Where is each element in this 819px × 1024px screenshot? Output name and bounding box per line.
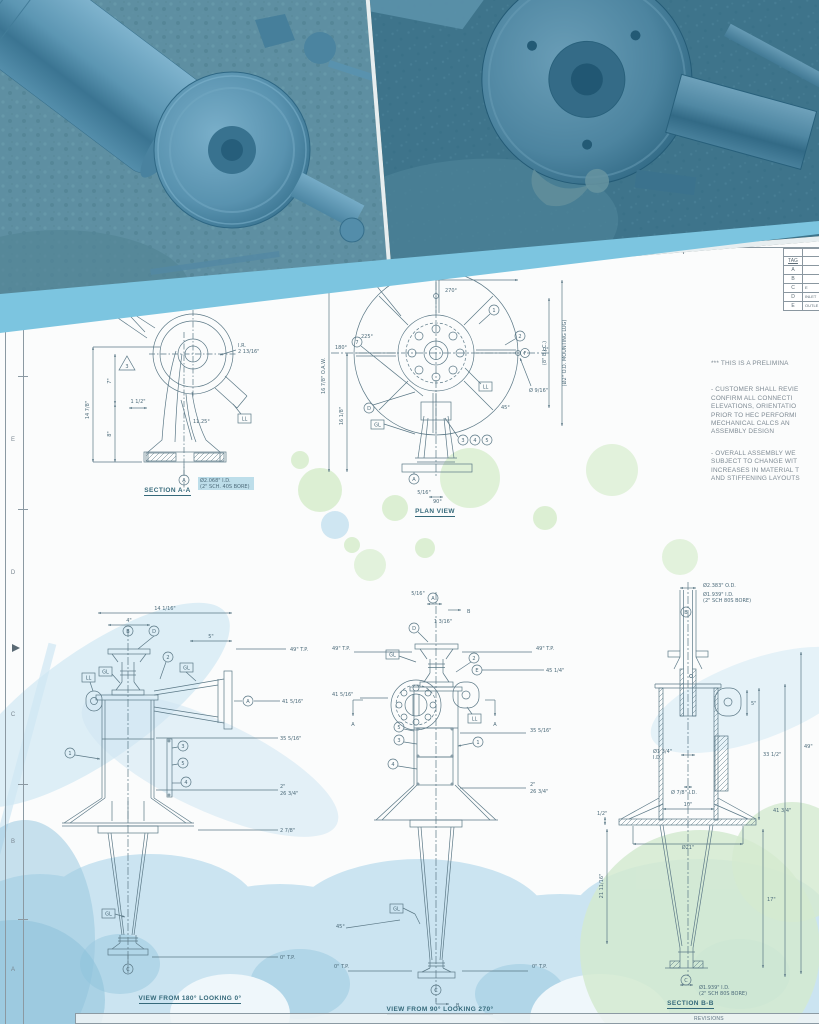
view-90-drawing: A 5/16" B 1 3/16" D 49" T.P. 49" T.P. GL… (330, 570, 575, 1020)
balloon-1: 1 (492, 308, 495, 314)
dim-49: 49" (804, 744, 813, 750)
angle-45: 45° (501, 405, 510, 411)
balloon-4: 4 (184, 780, 187, 786)
dim-idb: (2" SCH 80S BORE) (703, 598, 751, 604)
gl-label: GL (393, 907, 400, 913)
section-bb-drawing: Ø2.383" O.D. Ø1.939" I.D. (2" SCH 80S BO… (595, 576, 819, 1024)
dim-17: 17" (767, 897, 776, 903)
dim-4134: 41 3/4" (773, 808, 791, 814)
dim-2: 2" (280, 784, 285, 790)
dim-e4514: 45 1/4" (546, 668, 564, 674)
datum-c: C (434, 988, 438, 994)
section-aa-label: SECTION A-A (100, 487, 235, 496)
zone-row-a: A (7, 967, 19, 973)
zone-row-e: E (7, 437, 19, 443)
notes-title: *** THIS IS A PRELIMINA (711, 360, 819, 368)
view-180-drawing: 14 1/16" 4" 5" 49" T.P. B D A 41 5/16" 3… (50, 583, 330, 1007)
balloon-1: 1 (68, 751, 71, 757)
dim-e35: 35 5/16" (530, 728, 551, 734)
dim-tp49: 49" T.P. (290, 647, 309, 653)
zone-tick (18, 509, 28, 510)
ll-label: LL (86, 676, 92, 682)
dim-od: Ø2.383" O.D. (703, 582, 736, 589)
notes-paragraph-2: - OVERALL ASSEMBLY WE SUBJECT TO CHANGE … (711, 450, 819, 484)
section-bb-dimensions: Ø2.383" O.D. Ø1.939" I.D. (2" SCH 80S BO… (597, 582, 813, 997)
angle-270: 270° (445, 288, 458, 294)
tag-row-b: B (784, 274, 819, 283)
dim-21: Ø21" (682, 844, 695, 851)
plan-view-drawing: 12 13/16" O.A.W. 16 7/8" O.A.W. 16 1/8" … (303, 256, 575, 520)
gl-label: GL (183, 666, 190, 672)
bore-note-1: Ø2.068" I.D. (200, 477, 231, 484)
dim-left-inner: 16 1/8" (339, 407, 345, 425)
plan-casing (331, 268, 551, 476)
balloon-b: B (684, 610, 688, 616)
angle-225: 225° (361, 334, 374, 340)
dim-id134b: I.D. (653, 755, 662, 761)
balloon-5: 5 (397, 725, 400, 731)
dim-id: Ø1.939" I.D. (703, 591, 734, 598)
dim-top: 14 1/16" (154, 606, 175, 612)
tag-row-e: EOUTLE (784, 301, 819, 310)
plan-dimensions: 12 13/16" O.A.W. 16 7/8" O.A.W. 16 1/8" … (321, 270, 568, 505)
balloon-e: E (475, 668, 478, 674)
dim-lug: (Ø2" O.D. MOUNTING LUG) (561, 320, 568, 387)
dim-7: 7" (107, 378, 113, 383)
ll-label: LL (242, 417, 248, 423)
balloon-f: F (524, 351, 527, 357)
gl-label: GL (105, 912, 112, 918)
balloon-4: 4 (391, 762, 394, 768)
dim-id78: Ø 7/8" I.D. (671, 789, 697, 796)
sheet-inner-border (23, 294, 24, 1024)
sheet-outer-border (5, 298, 6, 1024)
dim-tp0-r: 0" T.P. (532, 964, 547, 970)
tag-row-a: A (784, 265, 819, 274)
dim-12: 1/2" (597, 811, 607, 817)
zone-tick (18, 919, 28, 920)
dim-tp49-r: 49" T.P. (536, 646, 555, 652)
dim-id2b: (2" SCH 80S BORE) (699, 991, 747, 997)
angle-90: 90° (433, 499, 442, 505)
plan-view-label: PLAN VIEW (370, 508, 500, 517)
angle-180: 180° (335, 345, 348, 351)
balloon-d: D (367, 406, 371, 412)
tag-row-c: CE (784, 283, 819, 292)
dim-8: 8" (107, 431, 113, 436)
datum-a: A (412, 477, 416, 483)
revisions-label: REVISIONS (694, 1016, 724, 1022)
dim-2634: 26 3/4" (530, 789, 548, 795)
balloon-d: D (412, 626, 416, 632)
section-bb-body (619, 582, 756, 976)
ll-label: LL (472, 717, 478, 723)
dim-e41: 41 5/16" (332, 692, 353, 698)
balloon-4: 4 (473, 438, 476, 444)
flag-3: 3 (125, 364, 128, 370)
balloon-b: B (126, 629, 130, 635)
dim-45: 45° (336, 924, 345, 930)
dim-oaw-left: 16 7/8" O.A.W. (321, 358, 327, 395)
dim-278: 2 7/8" (280, 828, 295, 834)
dim-e35: 35 5/16" (280, 736, 301, 742)
dim-oah: 14 7/8" (85, 401, 91, 419)
section-bb-label: SECTION B-B (638, 1000, 743, 1009)
gl-label: GL (102, 670, 109, 676)
dim-hole: Ø 9/16" (529, 387, 548, 394)
balloon-3: 3 (461, 438, 464, 444)
zone-tick (18, 376, 28, 377)
balloon-d: D (152, 629, 156, 635)
datum-a: A (182, 478, 186, 484)
section-cut-a-right: A (493, 722, 497, 728)
dim-angle: 11.25° (193, 419, 210, 425)
datum-c: C (126, 967, 130, 973)
balloon-7: 7 (355, 340, 358, 346)
preliminary-notes: *** THIS IS A PRELIMINA - CUSTOMER SHALL… (711, 360, 819, 496)
dim-throat: 1 1/2" (130, 399, 145, 405)
zone-row-b: B (7, 839, 19, 845)
gl-label: GL (374, 423, 381, 429)
zone-tick (18, 784, 28, 785)
dim-ir2: 2 13/16" (238, 349, 259, 355)
tag-row-d: DINLET (784, 292, 819, 301)
dim-2634: 26 3/4" (280, 791, 298, 797)
zone-row-d: D (7, 570, 19, 576)
dim-4: 4" (126, 618, 131, 624)
dim-id2: Ø1.939" I.D. (699, 984, 730, 991)
balloon-3: 3 (181, 744, 184, 750)
dim-5: 5" (751, 701, 756, 707)
dim-e41: 41 5/16" (282, 699, 303, 705)
angle-0: 0° (543, 347, 549, 353)
datum-c: C (684, 978, 688, 984)
section-cut-b: B (467, 609, 471, 615)
dim-1316: 1 3/16" (434, 619, 452, 625)
balloon-2: 2 (166, 655, 169, 661)
section-cut-a-left: A (351, 722, 355, 728)
tag-table-header: TAG (784, 256, 819, 265)
zone-row-c: C (7, 712, 19, 718)
balloon-2: 2 (472, 656, 475, 662)
gl-label: GL (389, 653, 396, 659)
notes-paragraph-1: - CUSTOMER SHALL REVIE CONFIRM ALL CONNE… (711, 386, 819, 436)
dim-516: 5/16" (411, 591, 425, 597)
dim-tp49-l: 49" T.P. (332, 646, 351, 652)
balloon-1: 1 (476, 740, 479, 746)
dim-id134a: Ø1 3/4" (653, 748, 672, 755)
ll-label: LL (483, 385, 489, 391)
dim-2: 2" (530, 782, 535, 788)
view180-dimensions: 14 1/16" 4" 5" 49" T.P. B D A 41 5/16" 3… (65, 606, 309, 974)
tag-connection-table: TAG A B CE DINLET EOUTLE (783, 248, 819, 311)
centerline-arrow-marker (12, 644, 20, 652)
view-180-label: VIEW FROM 180° LOOKING 0° (90, 995, 290, 1004)
drawing-sheet: 4 F E D C B A *** THIS IS A PRELIMINA - … (0, 0, 819, 1024)
tag-table-title-row (784, 249, 819, 256)
dim-5: 5" (208, 634, 213, 640)
dim-10: 10" (684, 802, 693, 808)
dim-3312: 33 1/2" (763, 752, 781, 758)
view90-dimensions: A 5/16" B 1 3/16" D 49" T.P. 49" T.P. GL… (332, 591, 564, 1009)
balloon-2: 2 (518, 334, 521, 340)
revisions-strip: REVISIONS (75, 1013, 819, 1024)
dim-tp0-l: 0" T.P. (334, 964, 349, 970)
balloon-3: 3 (397, 738, 400, 744)
datum-a: A (431, 596, 435, 602)
dim-21116: 21 11/16" (599, 874, 605, 899)
balloon-5: 5 (485, 438, 488, 444)
dim-tp0: 0" T.P. (280, 955, 295, 961)
datum-a: A (246, 699, 250, 705)
dim-516: 5/16" (417, 490, 431, 496)
balloon-5: 5 (181, 761, 184, 767)
